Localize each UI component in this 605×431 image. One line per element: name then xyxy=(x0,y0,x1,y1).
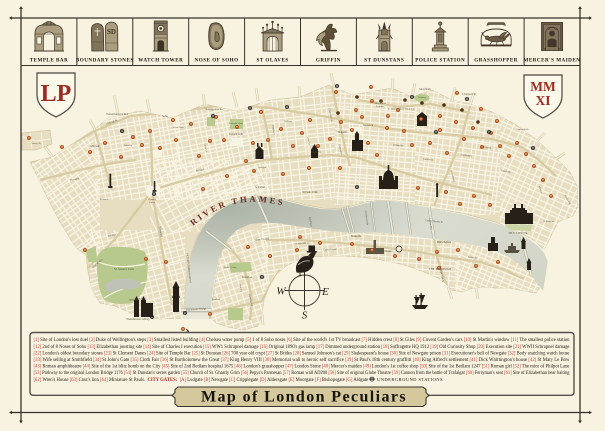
svg-text:HMS Belfast: HMS Belfast xyxy=(437,241,451,244)
svg-text:S: S xyxy=(302,310,308,322)
svg-text:WATCH TOWER: WATCH TOWER xyxy=(138,58,183,64)
svg-text:[53] Parkway to the original L: [53] Parkway to the original London Brid… xyxy=(34,371,571,376)
svg-text:Waterloo: Waterloo xyxy=(242,276,253,279)
svg-text:GRIFFIN: GRIFFIN xyxy=(316,58,341,64)
svg-text:[1] Site of London's lost duel: [1] Site of London's lost duel [2] Duke … xyxy=(34,338,571,343)
svg-text:Torrington Gt Rd: Torrington Gt Rd xyxy=(205,108,223,111)
svg-text:Cross: Cross xyxy=(149,201,155,204)
svg-text:London: London xyxy=(376,105,385,108)
svg-text:GRASSHOPPER: GRASSHOPPER xyxy=(474,58,518,64)
svg-text:Tottenham Ct Rd: Tottenham Ct Rd xyxy=(106,112,128,116)
svg-text:BOUNDARY STONES: BOUNDARY STONES xyxy=(76,58,134,64)
svg-text:Lambeth: Lambeth xyxy=(212,298,221,301)
svg-text:Finsbury: Finsbury xyxy=(418,96,427,99)
svg-text:Covent Gdn: Covent Gdn xyxy=(229,133,243,136)
svg-text:MM: MM xyxy=(530,79,556,94)
svg-text:Smithfield: Smithfield xyxy=(363,124,374,127)
svg-text:NOSE OF SOHO: NOSE OF SOHO xyxy=(195,58,239,64)
svg-text:St Pauls Walk: St Pauls Walk xyxy=(303,191,319,194)
svg-text:Bankside: Bankside xyxy=(351,235,362,238)
svg-text:Jubilee Gdns: Jubilee Gdns xyxy=(224,266,237,269)
svg-text:XI: XI xyxy=(535,93,550,108)
svg-text:THE TOWER: THE TOWER xyxy=(508,232,528,235)
svg-text:Tate Modern: Tate Modern xyxy=(379,250,393,253)
svg-text:E: E xyxy=(321,286,329,298)
svg-text:Somerset: Somerset xyxy=(255,186,265,189)
svg-text:Savoy St: Savoy St xyxy=(32,142,41,145)
svg-text:Soho Sq: Soho Sq xyxy=(124,144,133,147)
svg-text:Soho: Soho xyxy=(162,115,168,118)
svg-text:Aldwych: Aldwych xyxy=(258,166,267,169)
svg-text:Southwark St: Southwark St xyxy=(295,242,309,245)
svg-text:St James's Park: St James's Park xyxy=(114,267,134,271)
svg-text:Lincoln's Inn: Lincoln's Inn xyxy=(229,122,243,125)
svg-text:SD: SD xyxy=(107,28,116,36)
svg-text:UNDERGROUND STATIONS: UNDERGROUND STATIONS xyxy=(377,377,443,382)
svg-text:Mayfair: Mayfair xyxy=(90,145,99,148)
svg-text:LONDON WALL: LONDON WALL xyxy=(388,107,415,111)
svg-text:W: W xyxy=(276,286,286,298)
svg-text:St James: St James xyxy=(100,198,109,201)
svg-text:POLICE STATION: POLICE STATION xyxy=(415,58,465,64)
svg-text:Liverpool St: Liverpool St xyxy=(462,93,476,96)
svg-text:Spitalfields: Spitalfields xyxy=(518,128,529,131)
svg-text:[22] London's oldest boundary: [22] London's oldest boundary stones [23… xyxy=(34,351,570,356)
svg-text:ST OLAVES: ST OLAVES xyxy=(256,58,288,64)
svg-text:[12] 2nd of 8 Noses of Soho [1: [12] 2nd of 8 Noses of Soho [13] Elizabe… xyxy=(34,345,570,350)
svg-text:[43] Roman amphitheatre [44] S: [43] Roman amphitheatre [44] Site of the… xyxy=(34,365,570,370)
svg-text:[33] Wife selling at Smithfiel: [33] Wife selling at Smithfield [34] St … xyxy=(34,358,571,363)
svg-text:Holborn: Holborn xyxy=(284,120,293,123)
svg-text:St Katharine: St Katharine xyxy=(544,221,555,223)
svg-text:Map of London Peculiars: Map of London Peculiars xyxy=(201,389,407,406)
svg-text:Seven Dials: Seven Dials xyxy=(172,127,183,129)
svg-text:ST DUNSTANS: ST DUNSTANS xyxy=(364,58,404,64)
svg-text:Moorfields: Moorfields xyxy=(419,88,431,91)
svg-text:Fleet St: Fleet St xyxy=(311,150,321,154)
svg-text:LP: LP xyxy=(41,81,72,107)
svg-text:Westminster Abbey: Westminster Abbey xyxy=(126,317,150,321)
svg-text:[62] Wren's House [63] Cnut's: [62] Wren's House [63] Cnut's lion [64] … xyxy=(34,378,369,383)
svg-text:MERCER'S MAIDEN: MERCER'S MAIDEN xyxy=(524,58,581,64)
svg-text:Holborn: Holborn xyxy=(338,131,347,134)
svg-text:TEMPLE BAR: TEMPLE BAR xyxy=(30,58,69,64)
